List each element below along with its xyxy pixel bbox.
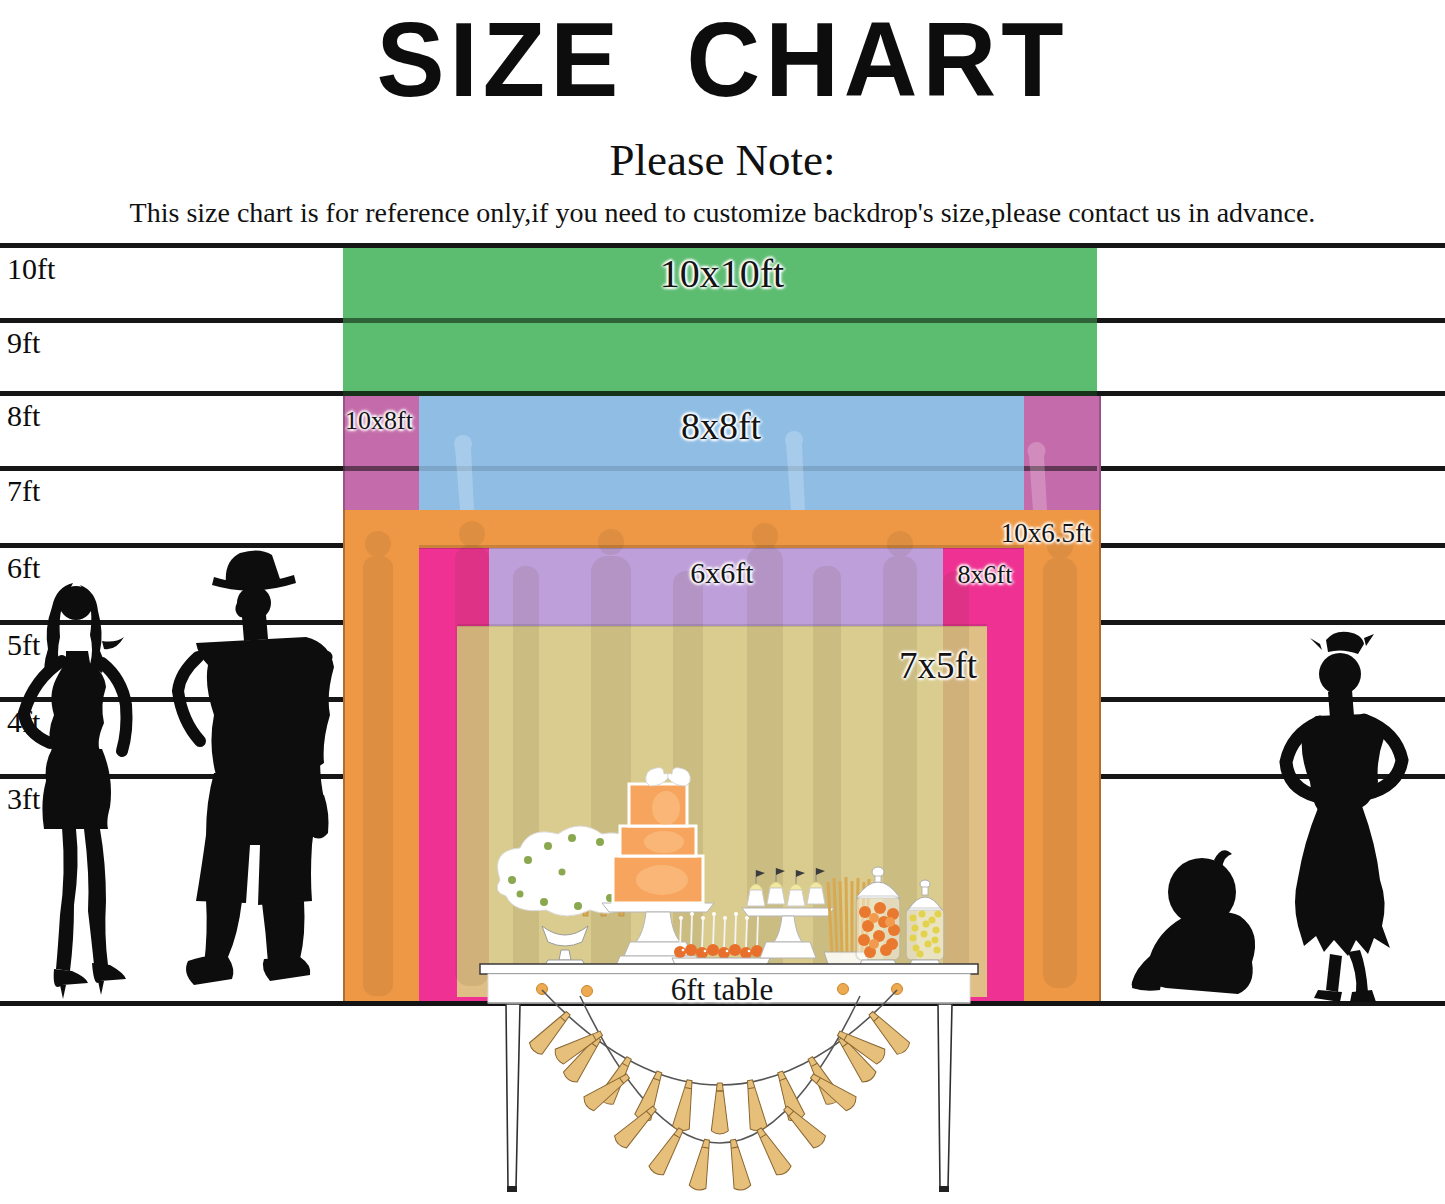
- ruler-label-9ft: 9ft: [7, 326, 40, 360]
- tassel-icon: [672, 1079, 698, 1132]
- tassel-icon: [752, 1125, 793, 1177]
- adult-woman-silhouette: [24, 583, 127, 999]
- size-label-6x6ft: 6x6ft: [690, 556, 753, 590]
- tassel-icon: [779, 1102, 827, 1150]
- cake-pops: [672, 912, 770, 967]
- note-body: This size chart is for reference only,if…: [0, 197, 1445, 229]
- line-segment-6ft: [419, 545, 1024, 549]
- baby-silhouette: [1132, 850, 1255, 994]
- man-left-arm: [178, 657, 200, 741]
- tassel-icon: [711, 1083, 728, 1134]
- size-label-10x10ft: 10x10ft: [660, 250, 784, 297]
- left-silhouettes: [10, 545, 350, 1015]
- line-segment-7ft-left: [343, 466, 419, 471]
- line-segment-7ft-right: [1024, 466, 1097, 471]
- adult-man-silhouette: [178, 550, 334, 985]
- tassel-icon: [612, 1102, 660, 1150]
- ruler-label-8ft: 8ft: [7, 399, 40, 433]
- right-silhouettes: [1120, 630, 1420, 1010]
- line-segment-9ft: [343, 318, 1097, 323]
- line-segment-8ft: [343, 391, 1097, 396]
- cupcakes: [747, 868, 825, 906]
- tiered-cake: [602, 768, 714, 966]
- note-heading: Please Note:: [0, 134, 1445, 186]
- size-label-8x8ft: 8x8ft: [681, 404, 761, 448]
- line-segment-7ft-mid: [419, 466, 1024, 471]
- woman-right-arm: [102, 663, 127, 751]
- tassel-icon: [647, 1125, 688, 1177]
- tassel-icon: [689, 1138, 716, 1191]
- size-chart-infographic: SIZE CHART Please Note: This size chart …: [0, 0, 1445, 1204]
- tassel-icon: [725, 1138, 752, 1191]
- size-label-10x8ft: 10x8ft: [345, 406, 413, 436]
- tassel-icon: [807, 1069, 858, 1112]
- tassel-garland: [527, 990, 911, 1191]
- table-size-label: 6ft table: [671, 972, 773, 1008]
- tassel-icon: [742, 1079, 768, 1132]
- page-title: SIZE CHART: [0, 0, 1445, 121]
- size-label-8x6ft: 8x6ft: [958, 560, 1013, 590]
- ruler-label-10ft: 10ft: [7, 252, 55, 286]
- cupcake-stand: [742, 868, 834, 958]
- tassel-icon: [582, 1069, 633, 1112]
- candy-jar-yellow: [906, 880, 944, 968]
- size-label-10x6.5ft: 10x6.5ft: [1001, 518, 1092, 549]
- ruler-label-7ft: 7ft: [7, 474, 40, 508]
- size-label-7x5ft: 7x5ft: [899, 644, 977, 687]
- dessert-table-illustration: [450, 730, 1010, 1204]
- line-segment-5ft: [457, 624, 987, 627]
- young-woman-silhouette: [1286, 632, 1402, 1002]
